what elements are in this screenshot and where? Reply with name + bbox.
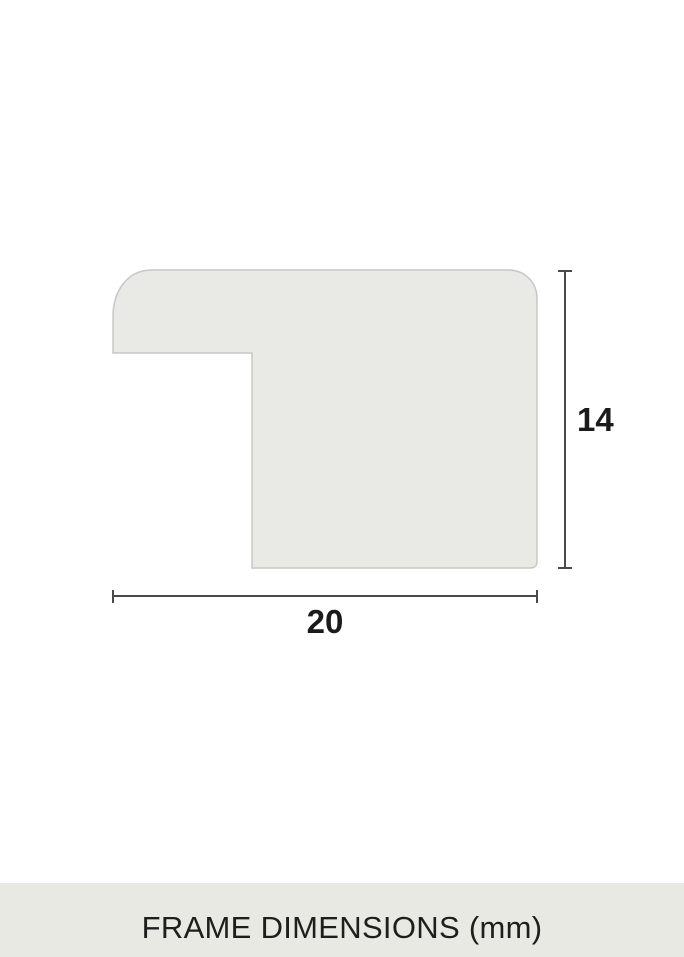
frame-profile-shape [113,270,537,568]
frame-profile-svg: 14 20 [0,0,684,880]
height-dimension-label: 14 [577,401,614,438]
width-dimension-line [113,590,537,603]
height-dimension-line [558,271,572,568]
frame-dimensions-diagram: 14 20 [0,0,684,880]
caption-label: FRAME DIMENSIONS (mm) [0,910,684,946]
width-dimension-label: 20 [307,603,344,640]
